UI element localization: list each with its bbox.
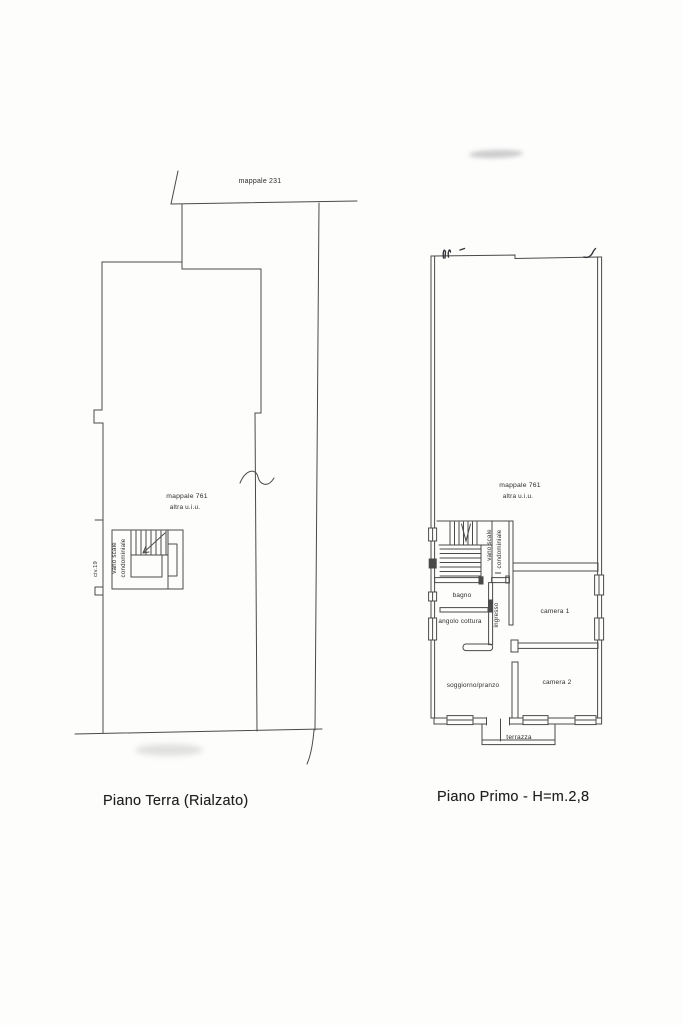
bathroom-top-wall-a bbox=[435, 578, 479, 583]
floorplan-drawing: mappale 231 mappale 761 altra u.i.u. van… bbox=[0, 0, 683, 1025]
scan-smudge-bottom bbox=[135, 744, 203, 756]
exterior-walls-first bbox=[431, 255, 602, 724]
label-ground-vano-scale: vano scale bbox=[111, 542, 118, 574]
hall-left-wall bbox=[489, 583, 493, 645]
window-bottom-2 bbox=[523, 716, 548, 725]
window-left-4 bbox=[429, 618, 437, 640]
room-label-ingresso: ingresso bbox=[493, 602, 500, 627]
label-first-condominiale: condominiale bbox=[496, 529, 503, 568]
living-camera2-wall bbox=[512, 662, 518, 718]
label-ground-mappale-761: mappale 761 bbox=[166, 493, 208, 500]
label-ground-condominiale: condominiale bbox=[120, 538, 127, 577]
entry-step-marks bbox=[95, 520, 103, 595]
stair-direction-arrow bbox=[462, 524, 471, 541]
stair-treads bbox=[131, 531, 166, 555]
scanned-floorplan-page: { "page": { "paper_color": "#fdfdfc", "l… bbox=[0, 0, 683, 1025]
camera-divider-jamb bbox=[511, 640, 518, 652]
parcel-boundary-lines bbox=[75, 171, 357, 764]
room-label-soggiorno: soggiorno/pranzo bbox=[447, 682, 500, 689]
label-first-mappale-761: mappale 761 bbox=[499, 482, 541, 489]
floor-plan-ground bbox=[75, 171, 357, 764]
bathroom-bottom-wall bbox=[440, 608, 488, 612]
window-left-2 bbox=[429, 559, 436, 568]
label-ground-altra-uiu: altra u.i.u. bbox=[170, 504, 200, 511]
stairwell-first bbox=[439, 522, 492, 579]
label-mappale-231: mappale 231 bbox=[239, 178, 282, 185]
hall-right-wall bbox=[509, 521, 513, 625]
window-symbols bbox=[429, 528, 604, 725]
room-label-camera-2: camera 2 bbox=[542, 679, 571, 686]
room-label-bagno: bagno bbox=[453, 592, 472, 599]
building-outline-ground bbox=[94, 204, 274, 733]
window-bottom-1 bbox=[447, 716, 473, 725]
caption-piano-primo: Piano Primo - H=m.2,8 bbox=[437, 789, 589, 805]
break-symbol bbox=[240, 471, 274, 484]
room-label-angolo-cottura: angolo cottura bbox=[438, 618, 482, 625]
window-left-3 bbox=[429, 592, 437, 601]
hall-left-wall-solid bbox=[489, 600, 493, 612]
camera-divider-wall bbox=[518, 643, 598, 648]
caption-piano-terra: Piano Terra (Rialzato) bbox=[103, 793, 248, 809]
room-label-camera-1: camera 1 bbox=[540, 608, 569, 615]
handwritten-pen-marks bbox=[443, 249, 595, 259]
window-right-1 bbox=[595, 575, 604, 595]
label-first-vano-scale: vano scale bbox=[486, 529, 493, 561]
label-first-altra-uiu: altra u.i.u. bbox=[503, 493, 533, 500]
window-right-2 bbox=[595, 618, 604, 640]
stair-treads-lower bbox=[440, 549, 481, 576]
camera1-top-wall bbox=[513, 563, 598, 571]
wall-left bbox=[431, 256, 435, 718]
window-bottom-3 bbox=[575, 716, 596, 725]
window-left-1 bbox=[429, 528, 437, 541]
label-civ-19: civ.19 bbox=[93, 561, 99, 577]
stair-landing bbox=[131, 555, 162, 577]
bathroom-top-wall-b bbox=[492, 578, 510, 583]
room-label-terrazza: terrazza bbox=[506, 734, 532, 741]
